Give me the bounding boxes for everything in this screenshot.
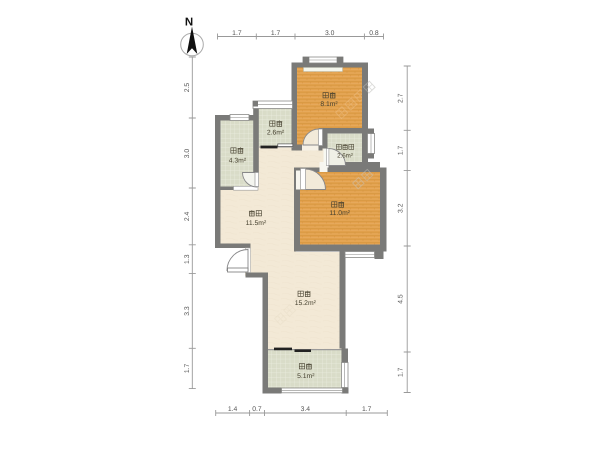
svg-text:1.7: 1.7 — [271, 30, 281, 37]
svg-text:1.4: 1.4 — [228, 406, 238, 413]
svg-text:1.7: 1.7 — [184, 363, 191, 373]
svg-text:1.7: 1.7 — [398, 145, 405, 155]
svg-text:5.1m²: 5.1m² — [297, 373, 315, 380]
svg-text:2.4: 2.4 — [184, 211, 191, 221]
svg-text:11.5m²: 11.5m² — [246, 220, 267, 227]
svg-text:0.8: 0.8 — [369, 30, 379, 37]
svg-text:0.7: 0.7 — [252, 406, 262, 413]
svg-text:2.6m²: 2.6m² — [267, 129, 285, 136]
svg-text:3.0: 3.0 — [325, 30, 335, 37]
svg-text:8.1m²: 8.1m² — [320, 101, 338, 108]
svg-text:4.5: 4.5 — [398, 294, 405, 304]
svg-text:1.7: 1.7 — [362, 406, 372, 413]
svg-text:N: N — [185, 17, 193, 29]
svg-text:2.6m²: 2.6m² — [337, 152, 353, 159]
svg-text:1.7: 1.7 — [232, 30, 242, 37]
svg-text:2.7: 2.7 — [398, 93, 405, 103]
svg-text:4.3m²: 4.3m² — [229, 157, 247, 164]
svg-text:2.5: 2.5 — [184, 83, 191, 93]
svg-text:3.3: 3.3 — [184, 306, 191, 316]
svg-text:15.2m²: 15.2m² — [295, 300, 317, 307]
svg-text:3.0: 3.0 — [184, 149, 191, 159]
svg-text:11.0m²: 11.0m² — [329, 210, 350, 217]
svg-text:3.4: 3.4 — [301, 406, 311, 413]
svg-text:1.3: 1.3 — [184, 254, 191, 264]
svg-text:3.2: 3.2 — [398, 203, 405, 213]
svg-text:1.7: 1.7 — [398, 367, 405, 377]
